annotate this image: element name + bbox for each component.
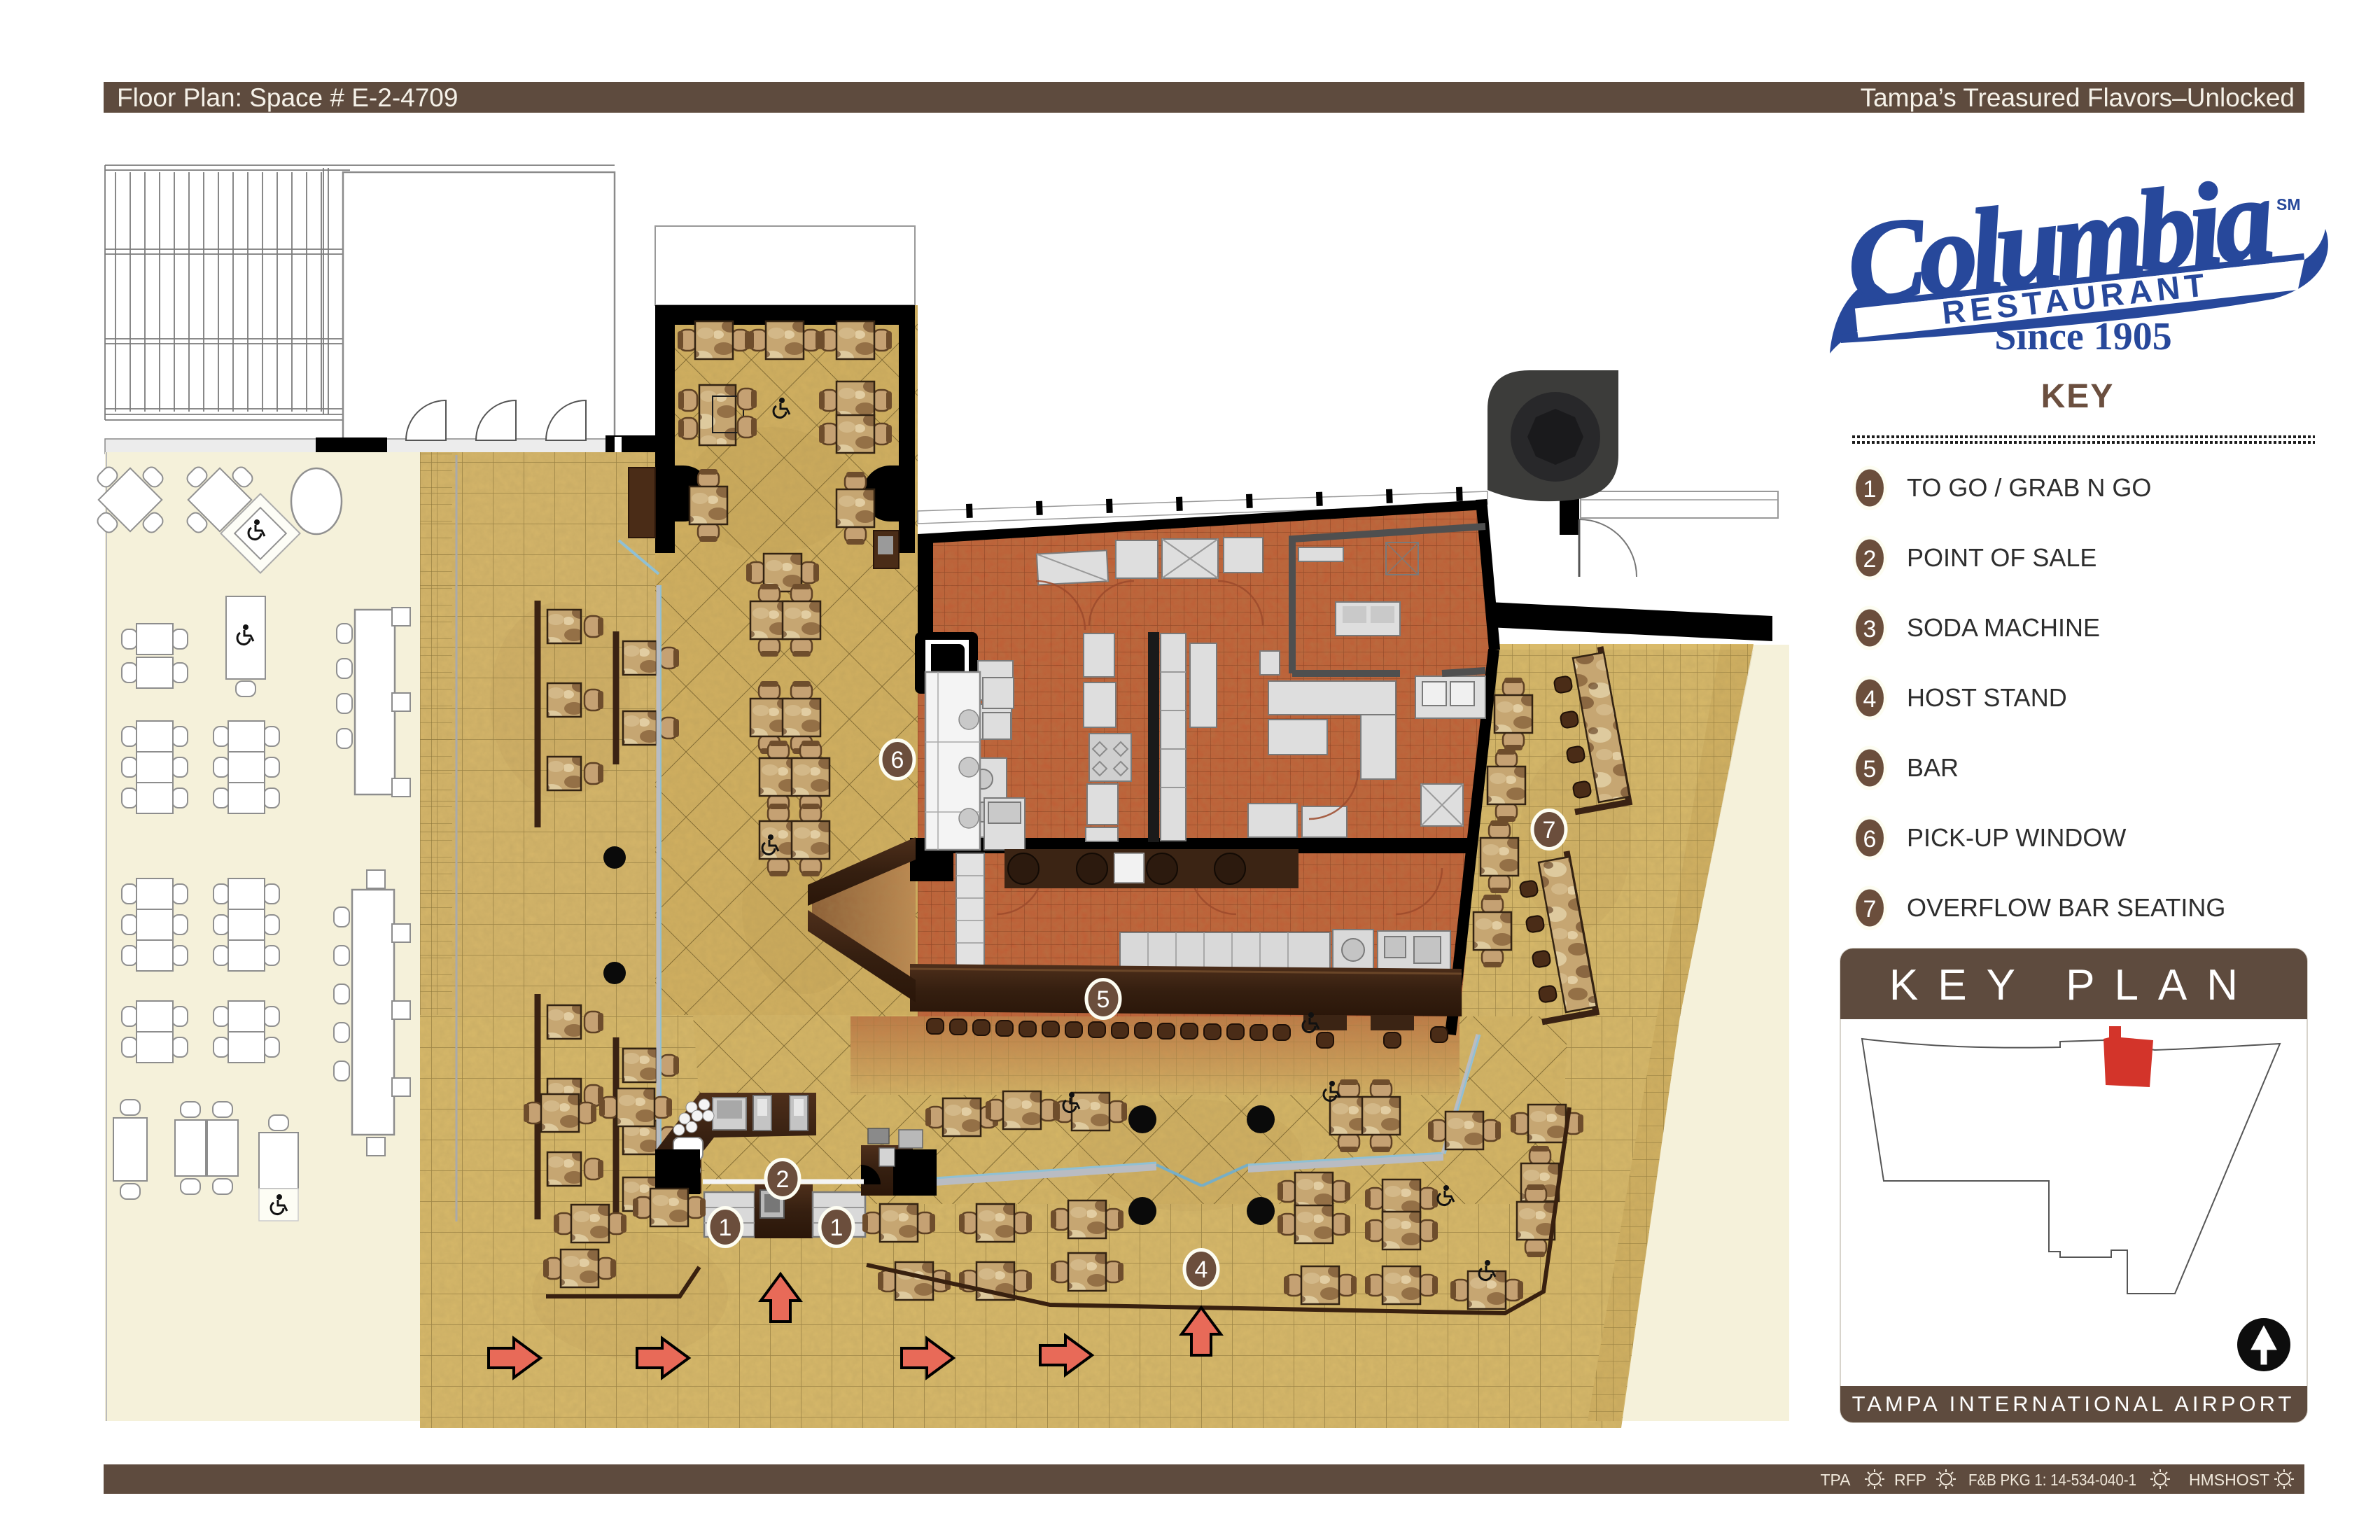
svg-text:RFP: RFP [1894,1471,1926,1489]
svg-text:TAMPA INTERNATIONAL AIRPORT: TAMPA INTERNATIONAL AIRPORT [1852,1392,2295,1416]
svg-text:POINT OF SALE: POINT OF SALE [1907,543,2096,572]
svg-text:HMSHOST: HMSHOST [2189,1471,2269,1489]
svg-text:5: 5 [1097,986,1110,1013]
svg-text:1: 1 [1863,476,1877,503]
svg-text:2: 2 [776,1166,790,1193]
svg-text:HOST STAND: HOST STAND [1907,683,2067,712]
svg-text:Since 1905: Since 1905 [1994,315,2172,358]
svg-text:6: 6 [891,747,904,773]
svg-text:5: 5 [1863,756,1877,783]
svg-text:Tampa’s Treasured Flavors–Unlo: Tampa’s Treasured Flavors–Unlocked [1861,83,2295,112]
svg-text:OVERFLOW BAR SEATING: OVERFLOW BAR SEATING [1907,893,2225,922]
svg-text:F&B PKG 1: 14-534-040-1: F&B PKG 1: 14-534-040-1 [1968,1471,2136,1489]
svg-text:6: 6 [1863,826,1877,853]
svg-text:KEY: KEY [2041,378,2115,415]
svg-text:TPA: TPA [1820,1471,1851,1489]
svg-text:PICK-UP WINDOW: PICK-UP WINDOW [1907,823,2126,852]
svg-text:4: 4 [1863,686,1877,713]
svg-text:3: 3 [1863,616,1877,643]
svg-text:TO GO / GRAB N GO: TO GO / GRAB N GO [1907,473,2151,502]
svg-text:SM: SM [2276,195,2301,213]
svg-text:4: 4 [1195,1256,1208,1283]
svg-text:2: 2 [1863,546,1877,573]
svg-text:SODA MACHINE: SODA MACHINE [1907,613,2100,642]
svg-text:Floor Plan: Space # E-2-4709: Floor Plan: Space # E-2-4709 [117,83,458,112]
svg-text:KEY PLAN: KEY PLAN [1889,961,2257,1009]
svg-text:1: 1 [830,1214,843,1241]
svg-text:7: 7 [1863,896,1877,923]
svg-text:7: 7 [1543,817,1556,843]
svg-text:BAR: BAR [1907,753,1959,782]
svg-text:1: 1 [719,1214,732,1241]
